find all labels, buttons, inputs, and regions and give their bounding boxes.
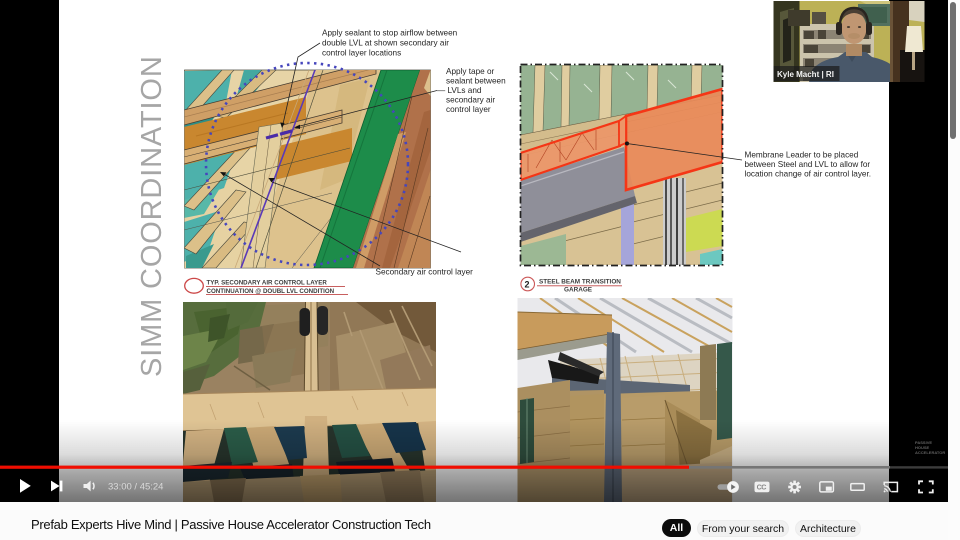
svg-text:location change of air control: location change of air control layer.	[745, 170, 872, 179]
svg-text:sealant between: sealant between	[446, 77, 506, 86]
svg-text:CC: CC	[757, 483, 767, 492]
svg-text:GARAGE: GARAGE	[564, 287, 593, 294]
svg-text:33:00 / 45:24: 33:00 / 45:24	[108, 482, 163, 493]
svg-text:STEEL BEAM TRANSITION: STEEL BEAM TRANSITION	[539, 279, 621, 286]
svg-text:control layer locations: control layer locations	[322, 49, 401, 58]
svg-text:Apply sealant to stop airflow: Apply sealant to stop airflow between	[322, 29, 458, 38]
svg-text:CONTINUATION @ DOUBL LVL CONDI: CONTINUATION @ DOUBL LVL CONDITION	[207, 288, 335, 295]
svg-text:— LVLs and: — LVLs and	[437, 86, 482, 95]
svg-text:Secondary air control layer: Secondary air control layer	[376, 268, 474, 277]
svg-text:SIMM COORDINATION: SIMM COORDINATION	[136, 55, 168, 377]
svg-text:Membrane Leader to be placed: Membrane Leader to be placed	[745, 151, 859, 160]
svg-text:TYP. SECONDARY AIR CONTROL LAY: TYP. SECONDARY AIR CONTROL LAYER	[207, 280, 328, 287]
svg-text:between Steel and LVL to allow: between Steel and LVL to allow for	[745, 160, 871, 169]
svg-text:secondary air: secondary air	[446, 96, 495, 105]
svg-text:Kyle Macht | RI: Kyle Macht | RI	[777, 70, 834, 79]
svg-text:double LVL at shown secondary: double LVL at shown secondary air	[322, 39, 449, 48]
svg-text:control layer: control layer	[446, 105, 491, 114]
svg-text:2: 2	[525, 280, 530, 290]
svg-text:Apply tape or: Apply tape or	[446, 67, 495, 76]
